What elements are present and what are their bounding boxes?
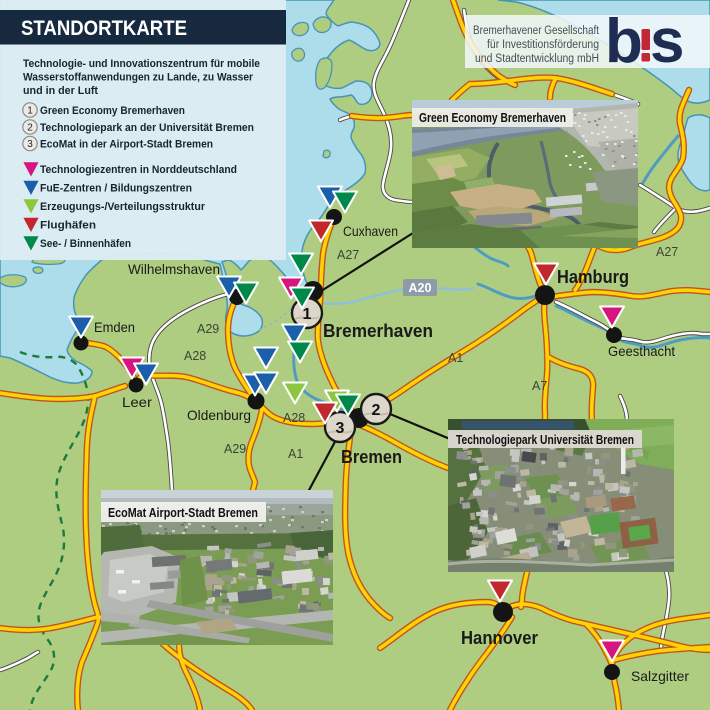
svg-text:EcoMat in der Airport-Stadt Br: EcoMat in der Airport-Stadt Bremen xyxy=(40,139,213,151)
svg-text:Hannover: Hannover xyxy=(461,627,538,648)
svg-text:A20: A20 xyxy=(409,281,432,295)
svg-text:Erzeugungs-/Verteilungsstruktu: Erzeugungs-/Verteilungsstruktur xyxy=(40,201,206,213)
svg-text:b: b xyxy=(605,7,643,76)
svg-text:1: 1 xyxy=(303,306,312,323)
svg-text:Oldenburg: Oldenburg xyxy=(187,407,251,423)
svg-text:2: 2 xyxy=(372,402,381,419)
svg-text:A27: A27 xyxy=(337,248,359,262)
svg-text:A29: A29 xyxy=(224,442,246,456)
svg-text:Flughäfen: Flughäfen xyxy=(40,220,96,232)
svg-text:Technologie- und Innovationsze: Technologie- und Innovationszentrum für … xyxy=(23,58,260,70)
svg-text:Bremen: Bremen xyxy=(341,446,402,467)
svg-text:STANDORTKARTE: STANDORTKARTE xyxy=(21,17,187,40)
svg-text:Leer: Leer xyxy=(122,394,152,410)
svg-text:Green Economy Bremerhaven: Green Economy Bremerhaven xyxy=(40,105,185,117)
svg-text:Geesthacht: Geesthacht xyxy=(608,343,675,359)
svg-text:A1: A1 xyxy=(448,351,463,365)
svg-text:Bremerhavener Gesellschaft: Bremerhavener Gesellschaft xyxy=(473,25,600,37)
svg-text:A28: A28 xyxy=(184,349,206,363)
svg-text:Wasserstoffanwendungen zu Land: Wasserstoffanwendungen zu Lande, zu Wass… xyxy=(23,72,254,84)
svg-text:1: 1 xyxy=(27,106,33,117)
svg-text:Technologiezentren in Norddeut: Technologiezentren in Norddeutschland xyxy=(40,164,237,176)
svg-text:See- / Binnenhäfen: See- / Binnenhäfen xyxy=(40,238,131,250)
svg-text:A29: A29 xyxy=(197,322,219,336)
svg-text:EcoMat Airport-Stadt Bremen: EcoMat Airport-Stadt Bremen xyxy=(108,506,258,520)
svg-text:und in der Luft: und in der Luft xyxy=(23,85,98,97)
svg-text:Green Economy Bremerhaven: Green Economy Bremerhaven xyxy=(419,111,566,125)
svg-text:2: 2 xyxy=(27,123,33,134)
svg-text:Hamburg: Hamburg xyxy=(557,266,629,287)
svg-text:A1: A1 xyxy=(288,447,303,461)
svg-text:A27: A27 xyxy=(656,245,678,259)
svg-text:A28: A28 xyxy=(283,411,305,425)
svg-text:Salzgitter: Salzgitter xyxy=(631,668,689,684)
svg-text:s: s xyxy=(650,7,684,76)
svg-text:A7: A7 xyxy=(532,379,547,393)
svg-text:Wilhelmshaven: Wilhelmshaven xyxy=(128,261,220,277)
svg-text:3: 3 xyxy=(27,139,33,150)
svg-text:Technologiepark Universität Br: Technologiepark Universität Bremen xyxy=(456,433,634,447)
svg-text:Bremerhaven: Bremerhaven xyxy=(323,320,433,341)
svg-text:Cuxhaven: Cuxhaven xyxy=(343,223,398,239)
svg-text:und Stadtentwicklung mbH: und Stadtentwicklung mbH xyxy=(475,53,599,65)
svg-text:für Investitionsförderung: für Investitionsförderung xyxy=(487,39,599,51)
svg-text:FuE-Zentren / Bildungszentren: FuE-Zentren / Bildungszentren xyxy=(40,183,192,195)
svg-text:Emden: Emden xyxy=(94,319,135,335)
svg-text:Technologiepark an der Univers: Technologiepark an der Universität Breme… xyxy=(40,122,254,134)
svg-text:3: 3 xyxy=(336,420,345,437)
